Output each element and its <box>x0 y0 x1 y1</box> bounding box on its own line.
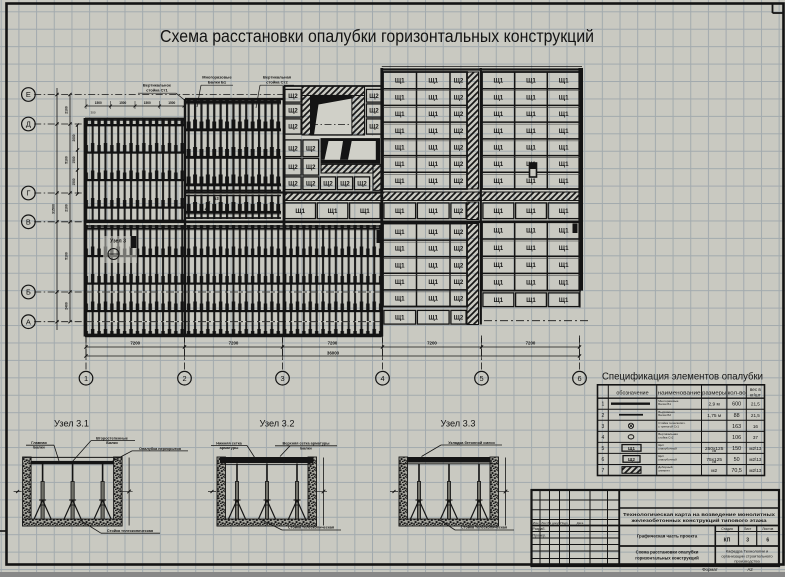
svg-text:Балки Б1: Балки Б1 <box>658 402 671 406</box>
svg-text:Щ2: Щ2 <box>306 181 316 187</box>
svg-text:железобетонных конструкций тип: железобетонных конструкций типового этаж… <box>630 517 767 523</box>
svg-text:Щ1: Щ1 <box>395 78 405 85</box>
svg-text:Щ2: Щ2 <box>306 146 316 152</box>
svg-text:Стойка телескопическая: Стойка телескопическая <box>288 526 334 530</box>
svg-text:1500: 1500 <box>95 101 102 105</box>
svg-text:Щ2: Щ2 <box>369 109 379 115</box>
svg-text:наименование: наименование <box>658 391 701 397</box>
svg-text:Щ1: Щ1 <box>395 178 405 185</box>
svg-text:5100: 5100 <box>65 156 69 164</box>
svg-text:Щ2: Щ2 <box>454 296 464 303</box>
svg-text:Щ1: Щ1 <box>360 208 370 215</box>
svg-text:2000: 2000 <box>72 134 76 141</box>
svg-text:производства: производства <box>734 559 760 564</box>
svg-text:Щ2: Щ2 <box>454 111 464 118</box>
svg-text:Щ2: Щ2 <box>288 146 298 152</box>
svg-text:Щ1: Щ1 <box>428 128 438 135</box>
svg-text:Щ1: Щ1 <box>559 78 569 85</box>
svg-text:Спецификация элементов опалубк: Спецификация элементов опалубки <box>602 371 763 383</box>
svg-text:Щ2: Щ2 <box>454 78 464 85</box>
svg-text:размеры: размеры <box>702 391 726 397</box>
svg-text:Дата: Дата <box>577 521 584 525</box>
svg-text:Подп.: Подп. <box>561 521 569 525</box>
svg-text:опалубочный: опалубочный <box>658 446 677 450</box>
svg-text:м2\13: м2\13 <box>749 446 762 451</box>
svg-text:Щ1: Щ1 <box>395 161 405 168</box>
svg-text:Щ1: Щ1 <box>295 208 305 215</box>
svg-text:Щ1: Щ1 <box>526 245 536 252</box>
svg-text:Щ1: Щ1 <box>559 94 569 101</box>
svg-text:70,5: 70,5 <box>731 468 742 474</box>
svg-text:Щ1: Щ1 <box>395 296 405 303</box>
svg-text:Щ1: Щ1 <box>428 296 438 303</box>
svg-text:1500: 1500 <box>144 101 151 105</box>
svg-text:Щ1: Щ1 <box>526 208 536 215</box>
svg-text:Б: Б <box>26 288 31 297</box>
svg-text:Узел 3.1: Узел 3.1 <box>54 418 89 428</box>
svg-text:21,5: 21,5 <box>751 402 760 407</box>
svg-text:Щ1: Щ1 <box>428 262 438 269</box>
svg-text:Стойка телескопическая: Стойка телескопическая <box>107 529 153 533</box>
svg-text:2100: 2100 <box>65 106 69 114</box>
svg-text:6: 6 <box>766 538 769 544</box>
svg-text:Щ1: Щ1 <box>493 94 503 101</box>
svg-text:Щ2: Щ2 <box>369 94 379 100</box>
svg-text:Щ1: Щ1 <box>395 246 405 253</box>
svg-text:Щ1: Щ1 <box>428 161 438 168</box>
svg-text:Щ2: Щ2 <box>288 181 298 187</box>
svg-text:Щ1: Щ1 <box>526 78 536 85</box>
svg-text:Щ1: Щ1 <box>493 208 503 215</box>
svg-text:КП: КП <box>724 538 731 544</box>
svg-text:7200: 7200 <box>328 341 338 346</box>
svg-text:Схема расстановки опалубки: Схема расстановки опалубки <box>636 550 699 555</box>
svg-text:стойка Ст2: стойка Ст2 <box>266 80 288 85</box>
svg-text:Щ2: Щ2 <box>323 181 333 187</box>
svg-text:Изм: Изм <box>533 521 539 525</box>
svg-text:Щ1: Щ1 <box>428 94 438 101</box>
svg-text:Щ1: Щ1 <box>628 446 635 451</box>
svg-text:Щ2: Щ2 <box>628 457 635 462</box>
svg-text:Щ2: Щ2 <box>357 181 367 187</box>
svg-text:Щ2: Щ2 <box>288 125 298 131</box>
svg-text:2: 2 <box>602 413 605 419</box>
svg-text:Щ1: Щ1 <box>559 279 569 286</box>
svg-text:Узел 3.2: Узел 3.2 <box>260 418 295 428</box>
svg-text:1500: 1500 <box>72 156 76 163</box>
svg-text:300: 300 <box>90 111 95 115</box>
svg-text:Балки Б2: Балки Б2 <box>658 413 671 417</box>
svg-text:1: 1 <box>602 402 605 408</box>
svg-text:Щ2: Щ2 <box>454 229 464 236</box>
svg-text:Щ2: Щ2 <box>306 165 316 171</box>
svg-text:№ докум.: № докум. <box>548 521 561 525</box>
svg-text:Щ2: Щ2 <box>454 315 464 321</box>
svg-text:Щ1: Щ1 <box>526 94 536 101</box>
svg-text:Щ2: Щ2 <box>454 128 464 135</box>
svg-text:Листов: Листов <box>762 527 773 531</box>
svg-text:Щ2: Щ2 <box>454 94 464 101</box>
svg-text:Щ1: Щ1 <box>429 209 439 215</box>
svg-text:4: 4 <box>602 435 605 441</box>
svg-text:Б3: Б3 <box>213 196 219 201</box>
svg-text:см: см <box>712 460 717 464</box>
svg-text:3: 3 <box>280 374 284 383</box>
svg-text:Щ1: Щ1 <box>559 145 569 152</box>
svg-text:Щ1: Щ1 <box>395 94 405 101</box>
svg-text:7200: 7200 <box>526 341 536 346</box>
svg-text:Щ1: Щ1 <box>493 161 503 168</box>
svg-text:Щ2: Щ2 <box>288 109 298 115</box>
svg-text:Щ1: Щ1 <box>395 315 405 321</box>
svg-text:Узел 3.3: Узел 3.3 <box>441 418 476 428</box>
svg-text:3: 3 <box>746 538 749 544</box>
svg-text:Стойка телескопическая: Стойка телескопическая <box>461 526 507 530</box>
svg-text:Г: Г <box>26 189 30 198</box>
svg-text:16: 16 <box>753 424 759 429</box>
svg-text:Щ1: Щ1 <box>493 145 503 152</box>
svg-text:Провер.: Провер. <box>533 533 546 537</box>
svg-text:1500: 1500 <box>72 178 76 185</box>
svg-text:Щ2: Щ2 <box>369 125 379 131</box>
svg-text:Балки: Балки <box>33 446 45 450</box>
svg-text:Щ1: Щ1 <box>526 279 536 286</box>
svg-text:см: см <box>712 449 717 453</box>
svg-text:Щ1: Щ1 <box>559 262 569 269</box>
svg-text:Щ1: Щ1 <box>328 208 338 215</box>
svg-text:Щ1: Щ1 <box>493 262 503 269</box>
svg-text:Главная: Главная <box>31 441 46 445</box>
svg-text:21,5: 21,5 <box>751 413 760 418</box>
svg-text:7200: 7200 <box>229 341 239 346</box>
svg-text:Щ1: Щ1 <box>493 228 503 235</box>
svg-text:Балки Б1: Балки Б1 <box>208 80 227 85</box>
svg-text:5: 5 <box>602 446 605 452</box>
svg-text:кол-во: кол-во <box>728 391 746 397</box>
svg-text:Балки: Балки <box>106 441 118 445</box>
svg-text:1500: 1500 <box>168 101 175 105</box>
svg-text:стойка Ст2: стойка Ст2 <box>658 435 674 439</box>
svg-text:Щ1: Щ1 <box>429 315 439 321</box>
svg-text:Щ1: Щ1 <box>428 78 438 85</box>
svg-text:Щ1: Щ1 <box>559 228 569 235</box>
svg-text:Щ1: Щ1 <box>493 279 503 286</box>
svg-text:Верхняя сетка арматуры: Верхняя сетка арматуры <box>283 442 330 446</box>
svg-text:Формат: Формат <box>702 567 718 572</box>
svg-text:А: А <box>26 317 31 326</box>
svg-text:Щ1: Щ1 <box>526 298 536 304</box>
svg-text:Опалубка перекрытия: Опалубка перекрытия <box>139 447 181 451</box>
svg-text:Щ1: Щ1 <box>493 111 503 118</box>
svg-text:А2: А2 <box>747 567 753 572</box>
svg-text:Щ1: Щ1 <box>559 128 569 135</box>
svg-text:с треногой Ст1: с треногой Ст1 <box>658 424 679 428</box>
svg-text:Щ2: Щ2 <box>340 181 350 187</box>
svg-text:88: 88 <box>734 413 740 419</box>
svg-text:Щ2: Щ2 <box>454 209 464 215</box>
svg-text:Щ1: Щ1 <box>559 298 569 304</box>
svg-text:м2\13: м2\13 <box>749 468 762 473</box>
svg-text:Щ1: Щ1 <box>428 145 438 152</box>
svg-text:Щ2: Щ2 <box>454 246 464 253</box>
svg-text:Щ2: Щ2 <box>454 262 464 269</box>
svg-text:1,75 м: 1,75 м <box>707 413 721 419</box>
svg-text:1: 1 <box>84 374 88 383</box>
svg-text:Щ2: Щ2 <box>288 94 298 100</box>
svg-text:Щ1: Щ1 <box>395 209 405 215</box>
svg-text:Нижняя сетка: Нижняя сетка <box>216 441 242 445</box>
svg-text:Щ1: Щ1 <box>526 111 536 118</box>
svg-text:36000: 36000 <box>327 350 340 355</box>
svg-text:7200: 7200 <box>130 341 140 346</box>
svg-text:Графическая часть проекта: Графическая часть проекта <box>637 534 698 539</box>
svg-text:6: 6 <box>577 374 581 383</box>
svg-text:Щ1: Щ1 <box>428 279 438 286</box>
svg-text:Щ1: Щ1 <box>395 279 405 286</box>
svg-text:Щ1: Щ1 <box>395 111 405 118</box>
svg-text:Щ1: Щ1 <box>428 111 438 118</box>
svg-text:Щ2: Щ2 <box>454 161 464 168</box>
svg-text:7200: 7200 <box>427 341 437 346</box>
svg-text:5: 5 <box>479 374 483 383</box>
svg-text:Разраб.: Разраб. <box>533 527 546 531</box>
svg-text:Балки: Балки <box>300 446 312 450</box>
svg-text:Щ1: Щ1 <box>428 246 438 253</box>
svg-text:Е: Е <box>26 90 31 99</box>
svg-text:арматуры: арматуры <box>220 446 239 450</box>
svg-text:50: 50 <box>734 457 740 463</box>
svg-text:7: 7 <box>602 468 605 474</box>
svg-text:600: 600 <box>732 402 741 408</box>
svg-text:Щ1: Щ1 <box>395 262 405 269</box>
svg-text:106: 106 <box>732 435 741 441</box>
svg-text:Стадия: Стадия <box>721 527 733 531</box>
svg-text:Щ1: Щ1 <box>428 229 438 236</box>
svg-text:Щ1: Щ1 <box>559 245 569 252</box>
svg-text:150: 150 <box>732 446 741 452</box>
svg-text:Щ1: Щ1 <box>395 145 405 152</box>
svg-text:Щ1: Щ1 <box>493 178 503 185</box>
svg-text:4: 4 <box>380 374 384 383</box>
svg-text:м2: м2 <box>711 468 717 474</box>
svg-text:Щ1: Щ1 <box>395 229 405 236</box>
svg-text:элемент: элемент <box>658 468 670 472</box>
svg-text:Щ2: Щ2 <box>454 279 464 286</box>
svg-text:Щ1: Щ1 <box>526 128 536 135</box>
svg-text:м2\13: м2\13 <box>749 457 762 462</box>
svg-text:горизонтальных конструкций: горизонтальных конструкций <box>635 556 699 561</box>
svg-text:Укладка бетонной смеси: Укладка бетонной смеси <box>448 441 495 445</box>
svg-text:вес в: вес в <box>750 387 762 392</box>
svg-text:Щ1: Щ1 <box>559 208 569 215</box>
svg-text:обозначение: обозначение <box>616 391 648 397</box>
svg-text:Щ1: Щ1 <box>526 262 536 269</box>
svg-text:Лист: Лист <box>744 527 752 531</box>
svg-text:Щ1: Щ1 <box>559 161 569 168</box>
svg-text:Щ2: Щ2 <box>454 145 464 152</box>
svg-text:Щ1: Щ1 <box>526 145 536 152</box>
svg-text:Щ2: Щ2 <box>454 178 464 185</box>
svg-text:Щ1: Щ1 <box>428 178 438 185</box>
svg-text:Щ1: Щ1 <box>494 298 504 304</box>
svg-text:Щ1: Щ1 <box>526 178 536 185</box>
svg-text:37: 37 <box>753 435 759 440</box>
svg-text:1500: 1500 <box>119 101 126 105</box>
svg-text:31500: 31500 <box>52 204 56 214</box>
svg-text:кг/шт: кг/шт <box>750 393 762 398</box>
svg-text:2100: 2100 <box>65 204 69 212</box>
svg-text:Щ2: Щ2 <box>288 165 298 171</box>
svg-text:3: 3 <box>602 424 605 430</box>
svg-text:Щ1: Щ1 <box>493 245 503 252</box>
svg-text:Второстепенные: Второстепенные <box>96 436 128 440</box>
svg-text:2: 2 <box>182 374 186 383</box>
svg-text:163: 163 <box>732 424 741 430</box>
svg-text:Щ1: Щ1 <box>493 78 503 85</box>
svg-text:Щ1: Щ1 <box>559 178 569 185</box>
svg-text:Щ1: Щ1 <box>526 228 536 235</box>
svg-text:2400: 2400 <box>65 302 69 310</box>
svg-text:6: 6 <box>602 457 605 463</box>
svg-text:опалубочный: опалубочный <box>658 457 677 461</box>
svg-text:Технологическая карта на возве: Технологическая карта на возведение моно… <box>623 512 776 517</box>
svg-text:Щ1: Щ1 <box>395 128 405 135</box>
svg-text:Щ1: Щ1 <box>493 128 503 135</box>
svg-text:В: В <box>26 217 31 226</box>
svg-text:Схема расстановки опалубки гор: Схема расстановки опалубки горизонтальны… <box>160 26 594 46</box>
svg-text:Д: Д <box>26 120 31 129</box>
svg-text:Щ1: Щ1 <box>559 111 569 118</box>
svg-text:5100: 5100 <box>65 252 69 260</box>
svg-text:Узел 3: Узел 3 <box>110 239 126 245</box>
svg-text:2,9 м: 2,9 м <box>709 402 720 408</box>
svg-text:стойка Ст1: стойка Ст1 <box>146 88 168 93</box>
